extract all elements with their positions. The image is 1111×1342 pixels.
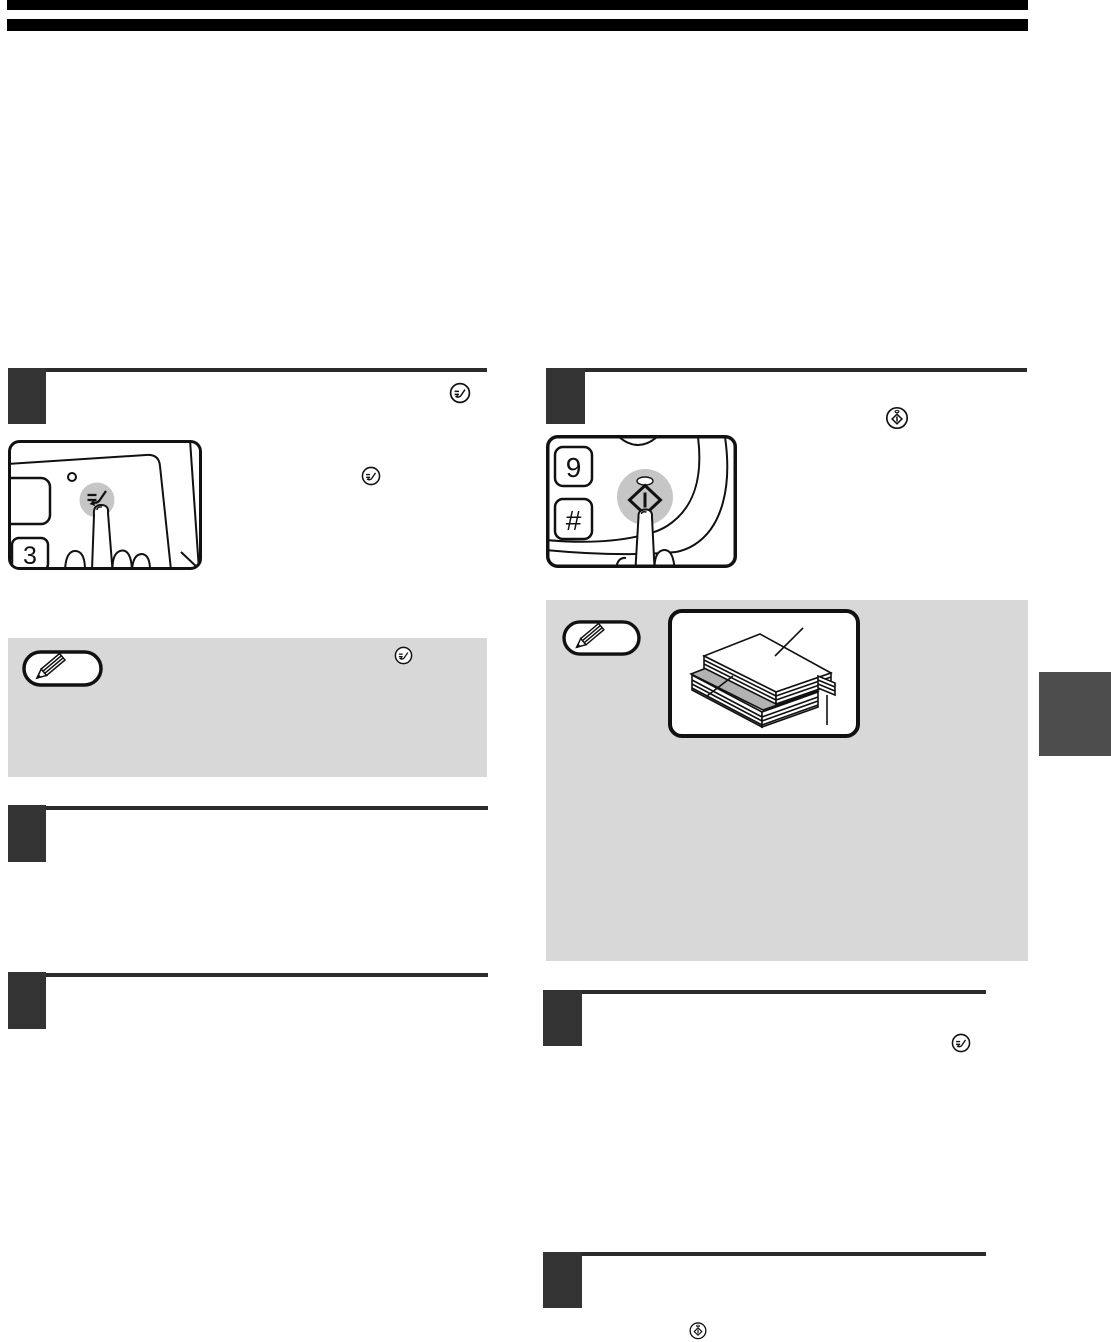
step-number-square: [8, 972, 46, 1029]
note-box: [8, 638, 487, 777]
led-indicator: [68, 473, 76, 481]
partial-key: [8, 478, 50, 524]
start-key-icon: [688, 1320, 708, 1340]
manual-page: 3: [0, 0, 1111, 1342]
step-rule: [46, 806, 488, 810]
note-box: [546, 600, 1028, 961]
step-number-square: [543, 990, 582, 1046]
step-number-square: [8, 368, 46, 424]
step-number-square: [546, 368, 585, 424]
numeric-key-3-label: 3: [23, 542, 37, 570]
end-key-icon: [951, 1033, 971, 1053]
step-number-square: [543, 1252, 582, 1308]
control-panel-illustration-left: 3: [8, 440, 202, 570]
end-key-icon: [394, 646, 413, 665]
step-number-square: [8, 805, 46, 862]
step-rule: [46, 368, 487, 372]
end-key-icon: [449, 382, 471, 404]
step-rule: [46, 973, 488, 977]
pencil-icon: [22, 650, 103, 687]
step-rule: [585, 368, 1027, 372]
pencil-icon: [560, 620, 643, 656]
step-rule: [582, 990, 986, 994]
start-key-icon: [884, 404, 910, 430]
header-bar-top: [7, 0, 1028, 10]
numeric-key-9-label: 9: [566, 452, 582, 483]
header-bar-bottom: [7, 19, 1028, 31]
hash-key-label: #: [566, 505, 582, 536]
paper-stack-illustration: [668, 609, 860, 738]
step-rule: [582, 1252, 986, 1256]
end-key-icon: [361, 466, 381, 486]
section-side-tab: [1039, 672, 1111, 756]
control-panel-illustration-right: 9 #: [546, 435, 737, 568]
